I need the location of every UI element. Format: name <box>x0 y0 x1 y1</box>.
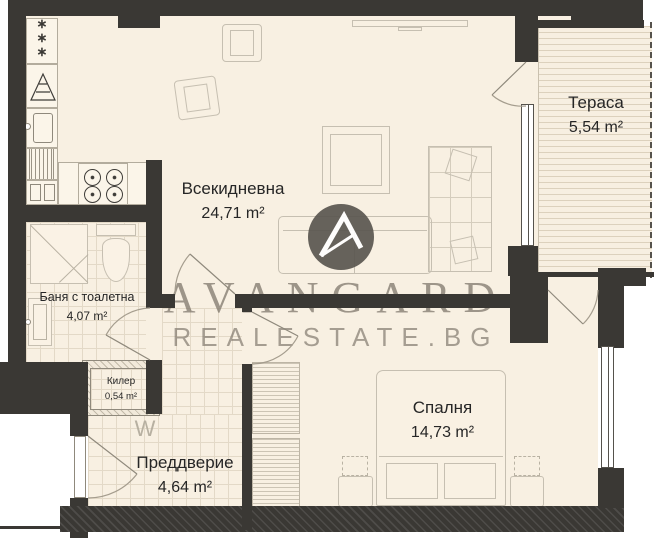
terrace-label: Тераса 5,54 m² <box>540 90 652 141</box>
bedroom-label: Спалня 14,73 m² <box>370 395 515 446</box>
hall-label: Преддверие 4,64 m² <box>100 450 270 501</box>
floor-plan: ∗ ∗ ∗ <box>0 0 672 538</box>
living-room-label: Всекидневна 24,71 m² <box>148 176 318 227</box>
closet-label: Килер 0,54 m² <box>88 374 154 404</box>
bathroom-label: Баня с тоалетна 4,07 m² <box>28 288 146 326</box>
